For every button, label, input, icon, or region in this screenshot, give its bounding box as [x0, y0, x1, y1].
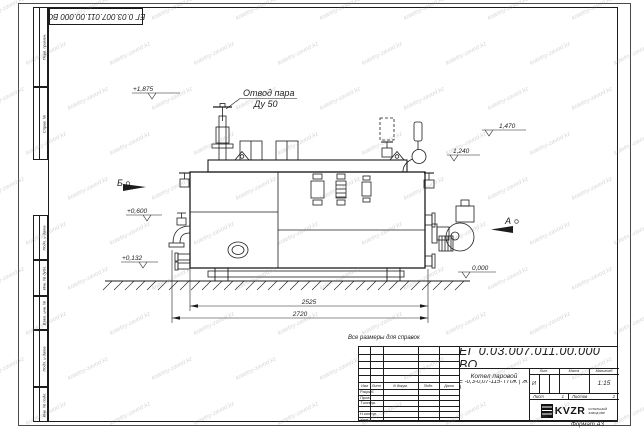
burner-assembly: [432, 200, 474, 251]
col-header-podp: Подп.: [418, 382, 439, 389]
grid-line: [539, 374, 540, 393]
grid-line: [359, 361, 459, 362]
grid-line: [359, 375, 459, 376]
level-1875: +1,875: [133, 86, 153, 93]
level-1240: 1,240: [453, 148, 470, 155]
safety-valve-boxes: [240, 141, 298, 160]
document-designation: ЕГ 0.03.007.011.00.000 ВО: [459, 348, 619, 367]
manhole: [228, 242, 248, 258]
level-1470: 1,470: [499, 123, 516, 130]
row-label-tkontr: Т.контр.: [359, 400, 384, 406]
grid-line: [359, 406, 459, 407]
mass-header: Масса: [559, 368, 589, 374]
company-name: КОТЕЛЬНЫЙ ЗАВОД КВР: [588, 407, 607, 415]
level-0132: +0,132: [122, 255, 142, 262]
steam-outlet-label: Отвод пара: [243, 88, 294, 98]
drawing-sheet: Перв. примен. Справ. № Подп. и дата Инв.…: [0, 0, 644, 430]
product-name-line2: Е -0,3-0,07-115- ГПЖ ( Ж ): [459, 380, 529, 390]
steam-outlet-size: Ду 50: [253, 99, 277, 109]
row-label-utv: Утв.: [359, 417, 384, 423]
steam-outlet-valve: [212, 104, 233, 161]
company-name-line1: КОТЕЛЬНЫЙ: [588, 407, 607, 411]
dimension-2525: 2525: [301, 299, 317, 306]
scale-value: 1:15: [589, 374, 619, 393]
view-label-b: Б: [117, 178, 123, 188]
sheets-total: 2: [613, 394, 615, 399]
title-block: Изм Лист N докум. Подп. Дата Разраб. Про…: [358, 346, 618, 421]
boiler-panel-lines: [190, 172, 425, 268]
col-header-izm: Изм: [359, 382, 370, 389]
col-header-list: Лист: [370, 382, 383, 389]
level-0000: 0,000: [472, 265, 489, 272]
water-level-gauges: [311, 174, 371, 205]
grid-line: [549, 374, 550, 393]
dimension-2720: 2720: [292, 311, 308, 318]
grid-line: [359, 368, 459, 369]
kvzr-logo-icon: [541, 404, 553, 418]
company-name-line2: ЗАВОД КВР: [588, 411, 607, 415]
top-right-valve: [380, 118, 394, 157]
lit-value: И: [529, 374, 539, 393]
company-logo-text: KVZR: [555, 405, 586, 417]
sheet-number: 1: [562, 394, 564, 399]
sheet-label: Лист: [533, 394, 544, 399]
grid-line: [359, 354, 459, 355]
col-header-ndokum: N докум.: [383, 382, 418, 389]
level-0600: +0,600: [127, 208, 147, 215]
ground-line: [103, 281, 470, 290]
reference-note: Все размеры для справок: [348, 335, 420, 341]
boiler-body: [190, 160, 425, 281]
format-label: Формат А3: [571, 422, 604, 428]
view-label-a: А: [504, 216, 511, 226]
company-cell: KVZR КОТЕЛЬНЫЙ ЗАВОД КВР: [529, 399, 619, 422]
col-header-data: Дата: [439, 382, 459, 389]
sheets-label: Листов: [572, 394, 587, 399]
lifting-lugs: [235, 152, 404, 161]
